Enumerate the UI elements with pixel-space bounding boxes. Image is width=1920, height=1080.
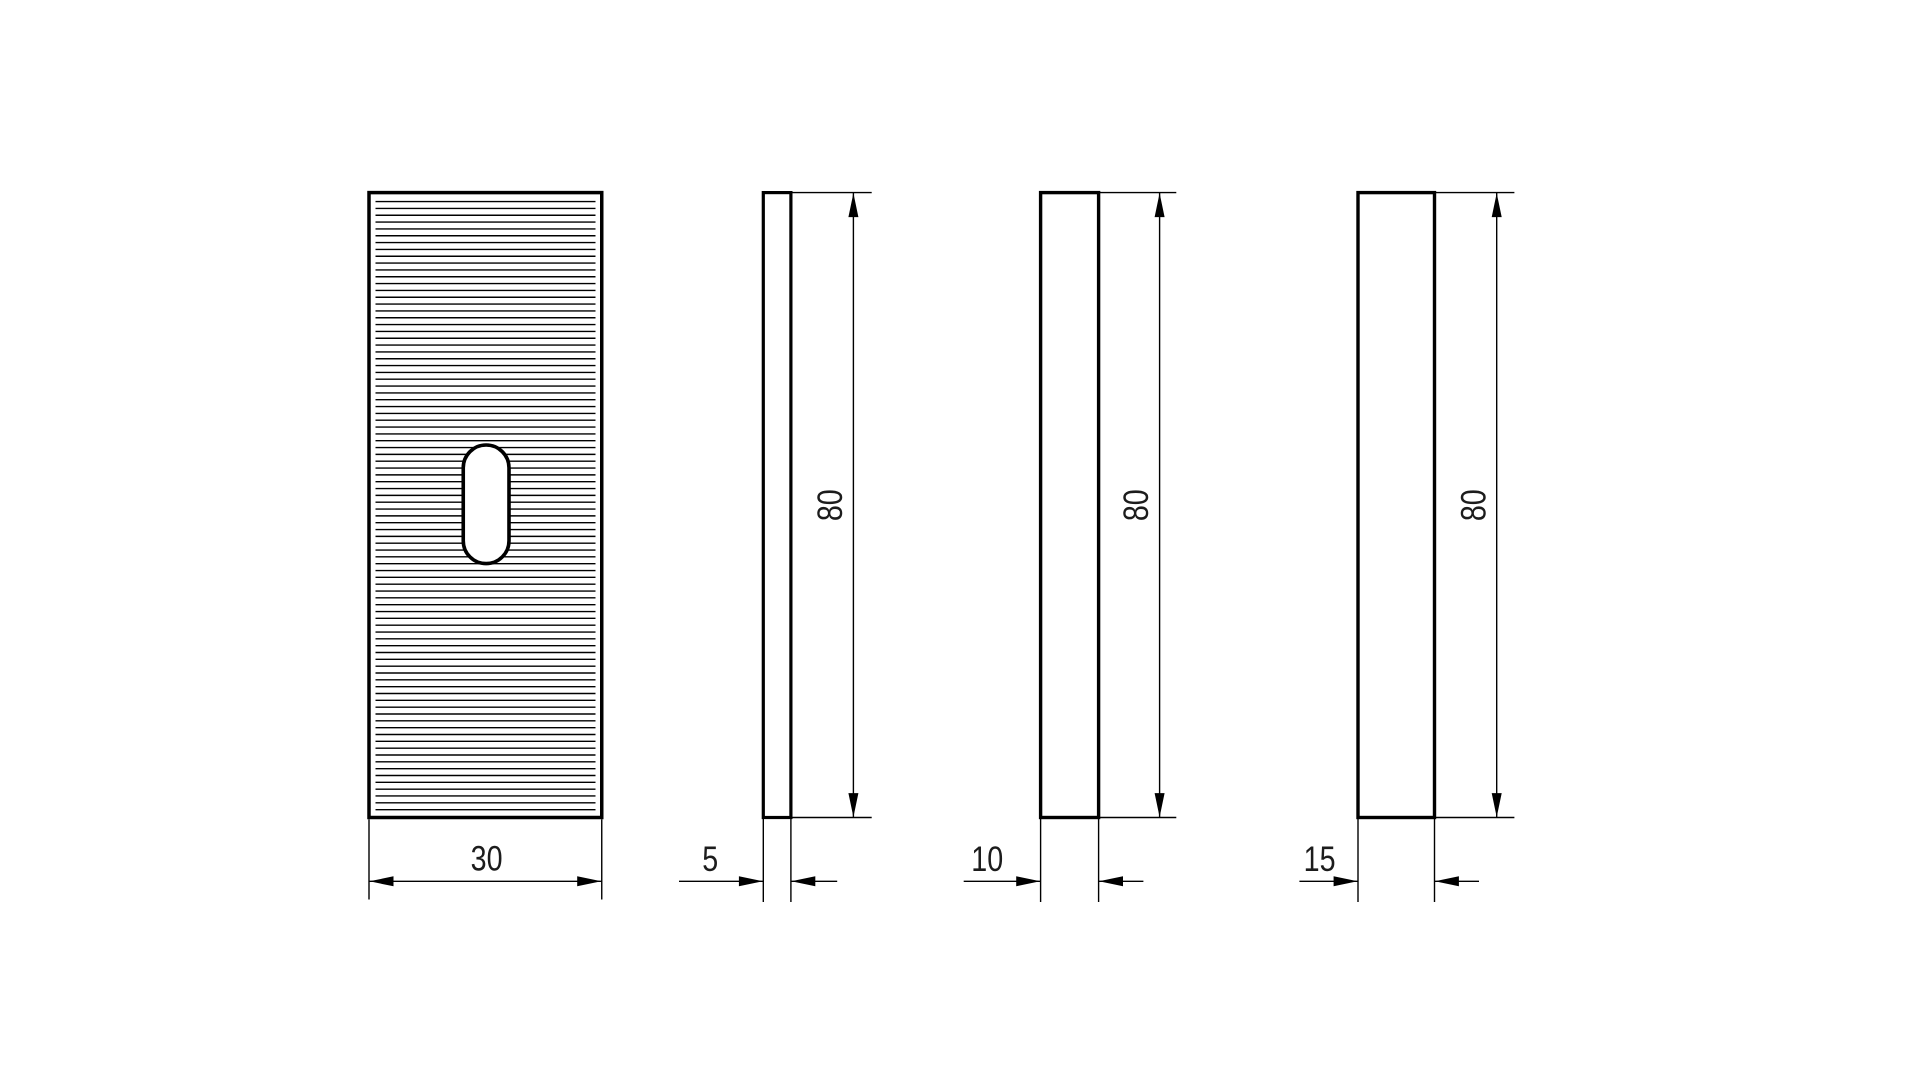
svg-text:80: 80 [1454,489,1493,521]
svg-text:10: 10 [971,839,1003,878]
svg-text:5: 5 [702,839,718,878]
svg-text:80: 80 [810,489,849,521]
svg-text:30: 30 [471,839,503,878]
svg-text:15: 15 [1304,839,1336,878]
svg-text:80: 80 [1116,489,1155,521]
